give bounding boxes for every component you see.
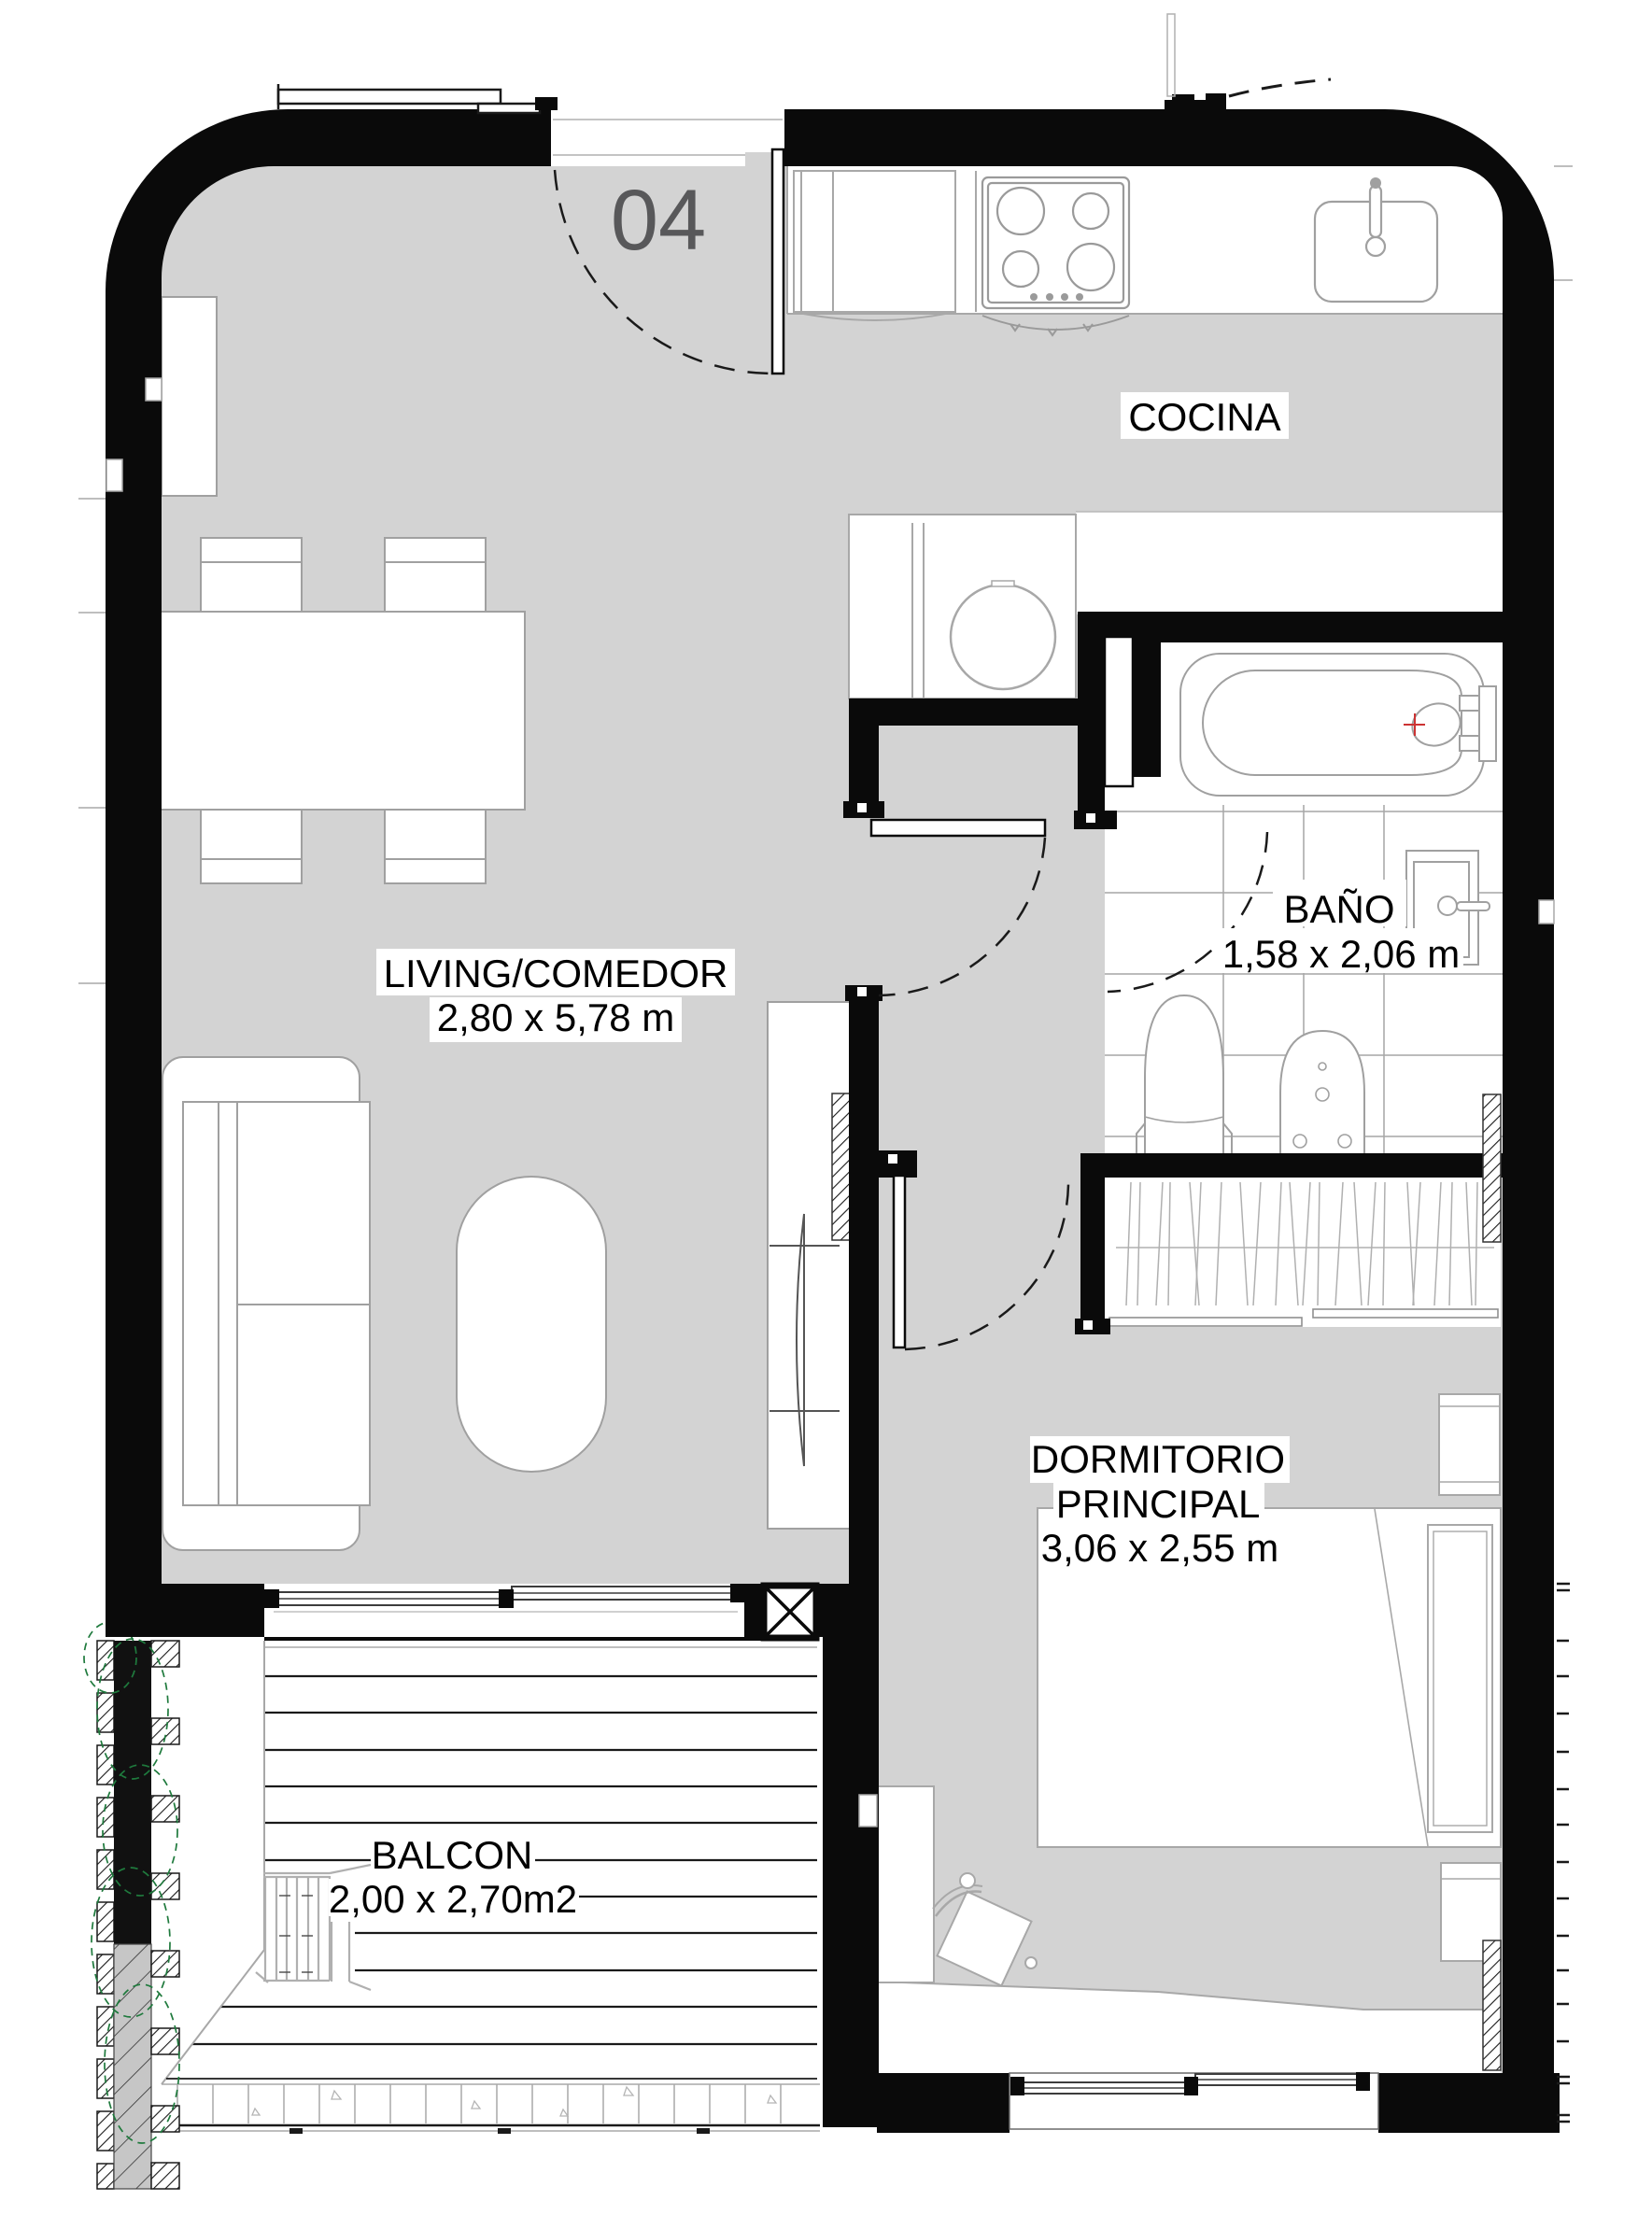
svg-text:BAÑO: BAÑO	[1283, 887, 1394, 931]
svg-text:1,58 x 2,06 m: 1,58 x 2,06 m	[1222, 932, 1460, 976]
svg-text:04: 04	[611, 173, 706, 268]
svg-text:COCINA: COCINA	[1128, 395, 1280, 439]
svg-text:BALCON: BALCON	[372, 1833, 533, 1877]
svg-text:2,80 x 5,78 m: 2,80 x 5,78 m	[437, 995, 674, 1039]
svg-text:DORMITORIO: DORMITORIO	[1031, 1437, 1285, 1481]
svg-text:PRINCIPAL: PRINCIPAL	[1056, 1482, 1261, 1526]
svg-text:2,00 x 2,70m2: 2,00 x 2,70m2	[329, 1877, 577, 1921]
svg-text:LIVING/COMEDOR: LIVING/COMEDOR	[384, 952, 728, 995]
svg-text:3,06 x 2,55 m: 3,06 x 2,55 m	[1041, 1526, 1278, 1570]
